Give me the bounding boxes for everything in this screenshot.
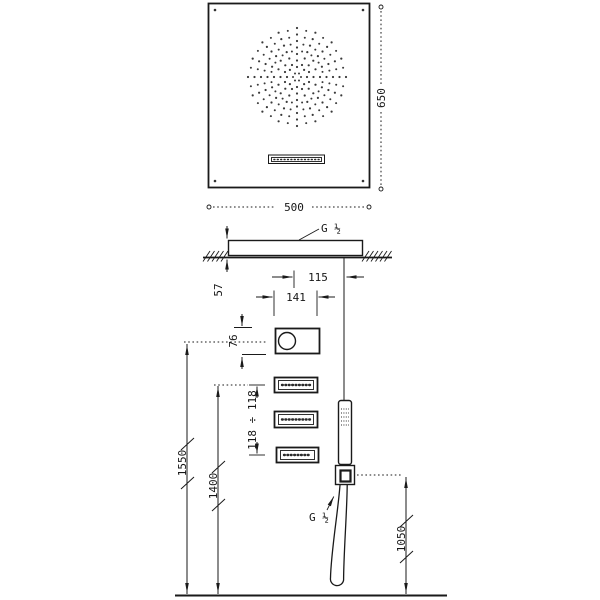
ceiling-hatch-right bbox=[362, 251, 392, 262]
dim-jet-spacing: 118 ÷ 118 bbox=[246, 385, 265, 455]
body-jet-2 bbox=[275, 412, 318, 428]
dim-label-76: 76 bbox=[227, 334, 240, 347]
shower-diagram-svg: 500 650 G ½ 57 115 141 bbox=[0, 0, 600, 600]
body-jet-3 bbox=[277, 448, 319, 463]
dim-label-650: 650 bbox=[375, 88, 388, 108]
dim-label-118-118: 118 ÷ 118 bbox=[246, 390, 259, 450]
dim-control-width: 141 bbox=[256, 291, 335, 317]
dim-label-1050: 1050 bbox=[395, 526, 408, 553]
dim-profile-depth: 57 bbox=[212, 226, 227, 297]
technical-drawing-canvas: 500 650 G ½ 57 115 141 bbox=[0, 0, 600, 600]
cascade-slot bbox=[269, 155, 325, 164]
control-unit bbox=[276, 329, 320, 354]
dim-label-500: 500 bbox=[284, 201, 304, 214]
dim-front-height: 650 bbox=[375, 5, 388, 191]
dim-label-1550: 1550 bbox=[176, 450, 189, 477]
dim-control-height: 76 bbox=[227, 314, 266, 369]
hand-shower-wand bbox=[339, 401, 352, 465]
ceiling-hatch-left bbox=[203, 251, 228, 262]
dim-control-mount-height: 1550 bbox=[176, 344, 194, 594]
shower-head-profile bbox=[229, 241, 363, 256]
dim-control-offset: 115 bbox=[272, 271, 364, 289]
hand-shower-hose bbox=[330, 485, 347, 586]
dim-handshower-mount-height: 1050 bbox=[395, 477, 413, 594]
dim-label-1400: 1400 bbox=[207, 473, 220, 500]
dim-jet-mount-height: 1400 bbox=[207, 386, 225, 594]
front-view-shower-head bbox=[209, 4, 370, 188]
inlet-leader-line bbox=[299, 229, 319, 240]
dim-label-57: 57 bbox=[212, 283, 225, 296]
dim-front-width: 500 bbox=[207, 201, 371, 214]
body-jet-1 bbox=[275, 378, 318, 393]
handshower-leader-line bbox=[327, 497, 334, 511]
side-view-ceiling-mount: G ½ 57 bbox=[203, 222, 392, 297]
dim-label-141: 141 bbox=[286, 291, 306, 304]
inlet-thread-label: G ½ bbox=[321, 222, 341, 235]
handshower-thread-label: G ½ bbox=[309, 511, 329, 524]
dim-label-115: 115 bbox=[308, 271, 328, 284]
